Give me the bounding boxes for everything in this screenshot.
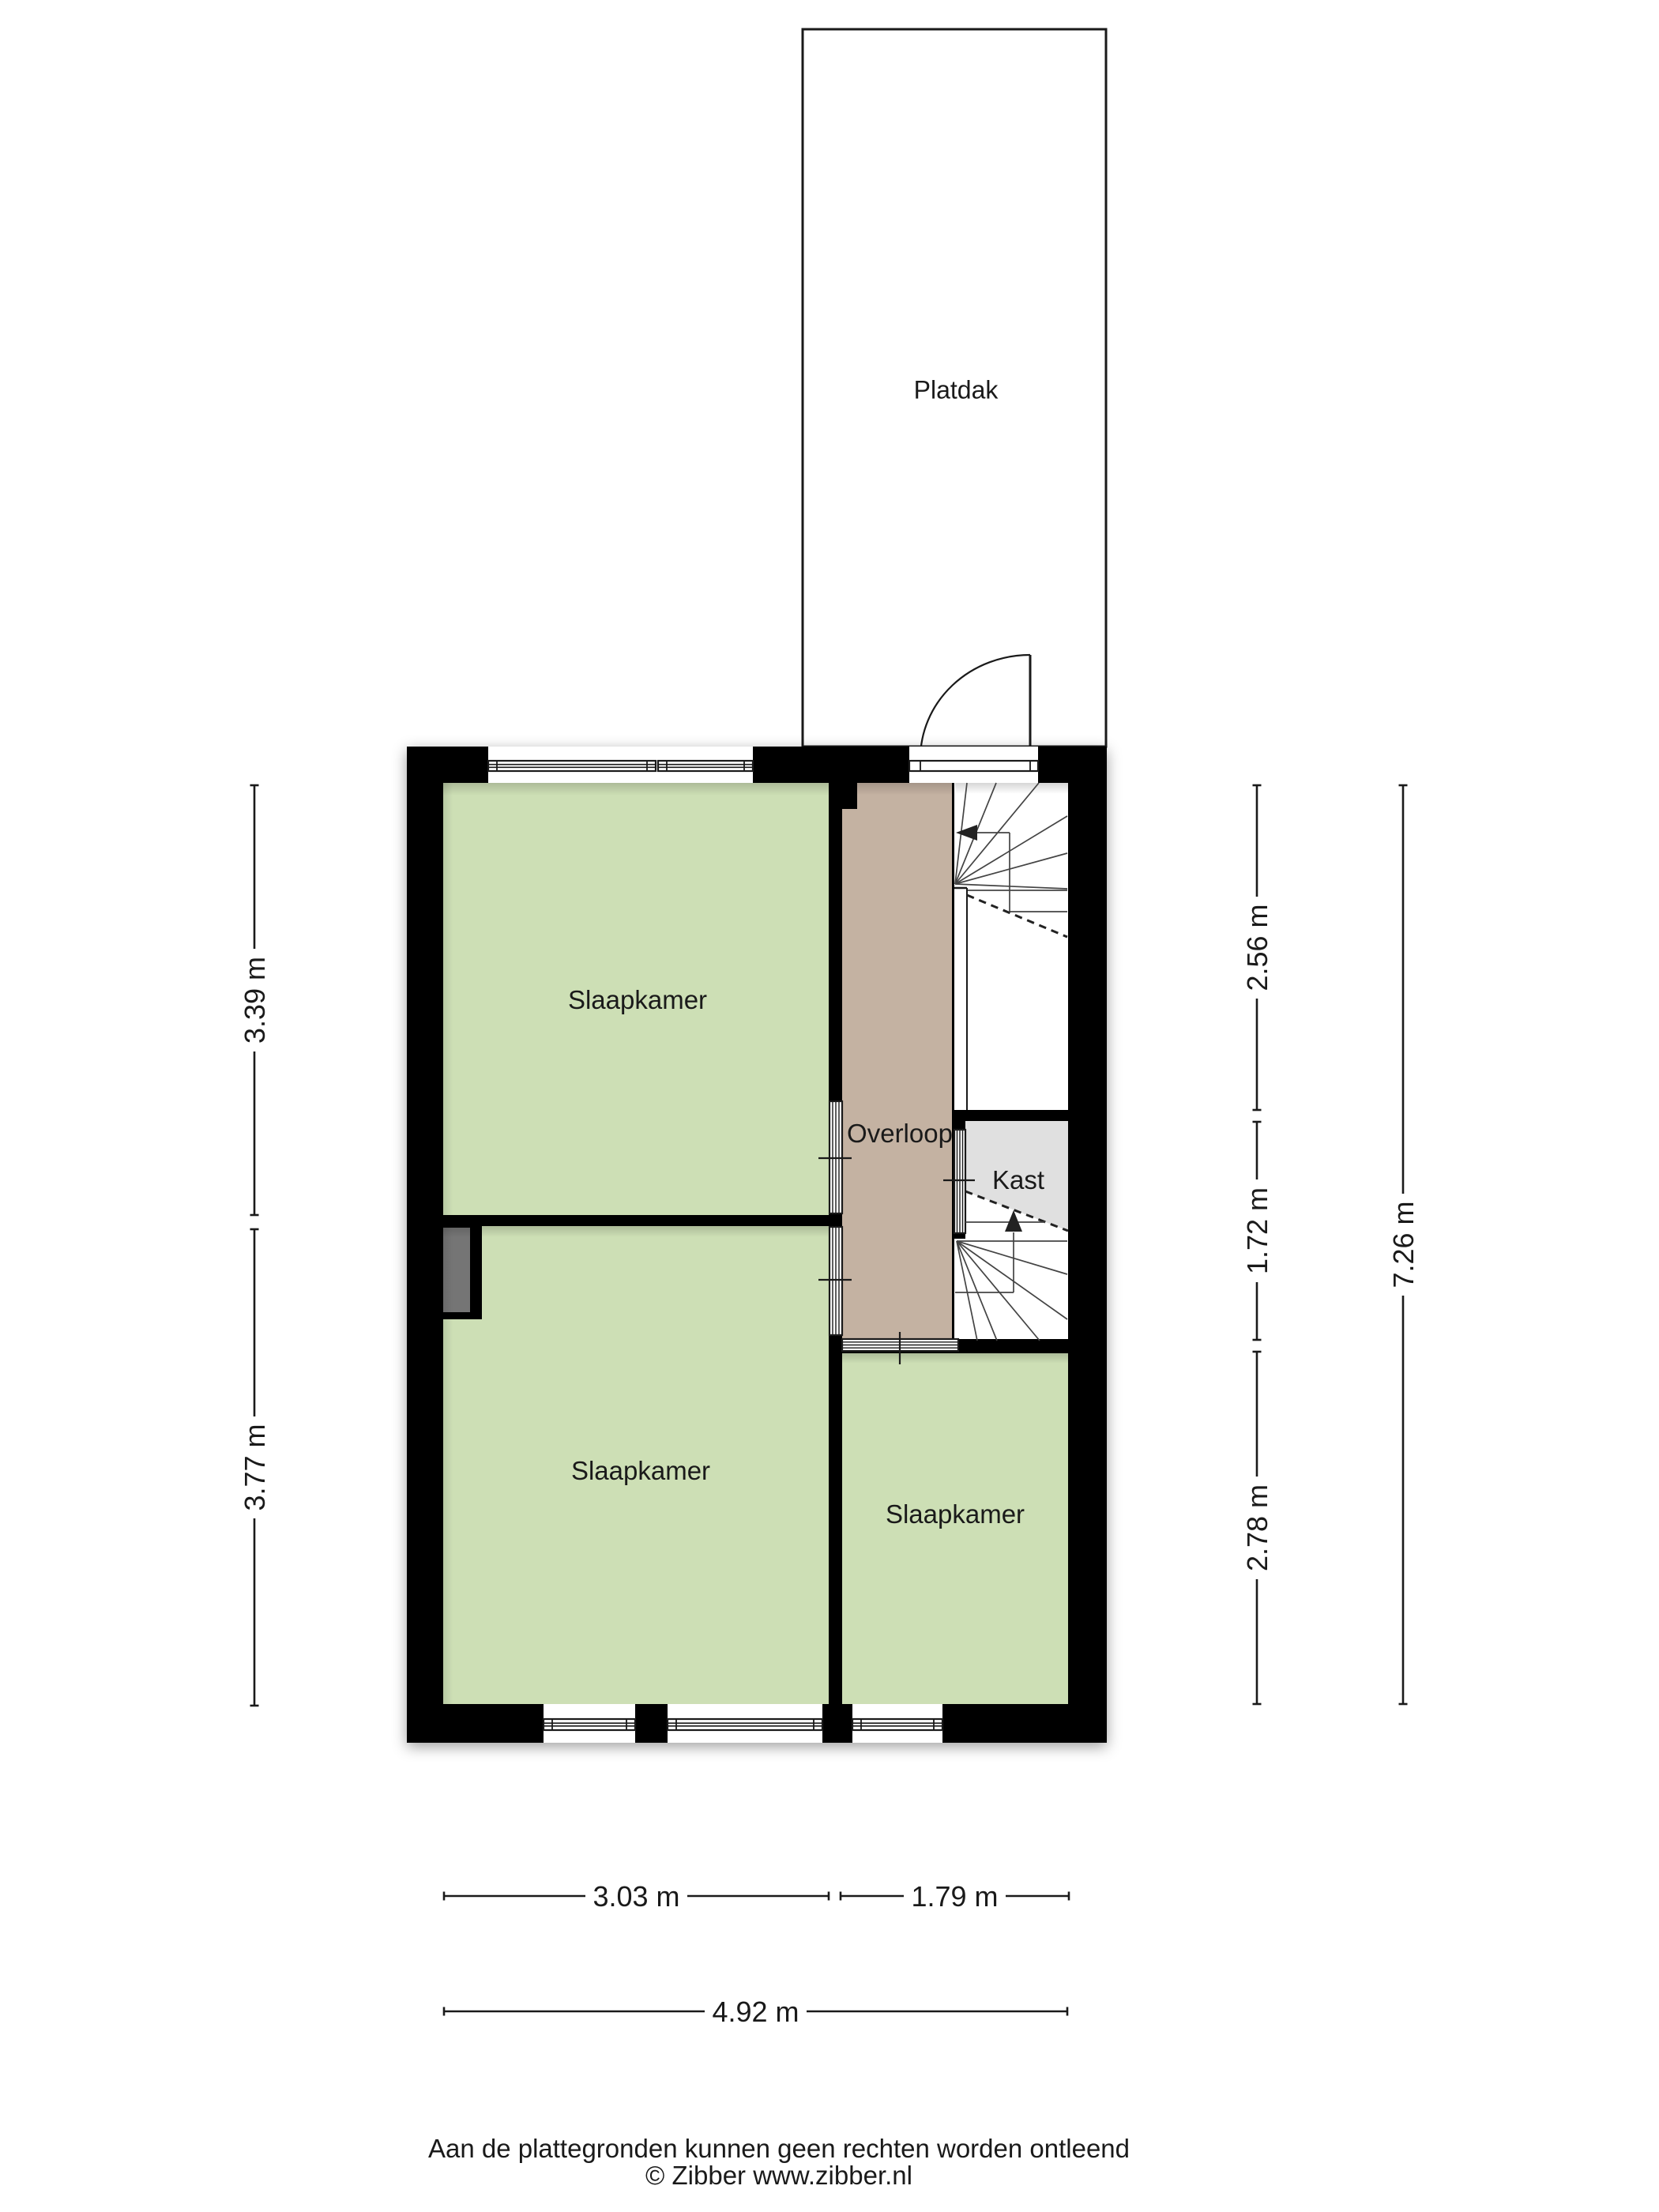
svg-text:3.03 m: 3.03 m	[592, 1880, 679, 1913]
svg-text:2.56 m: 2.56 m	[1241, 904, 1273, 991]
svg-text:2.78 m: 2.78 m	[1241, 1484, 1273, 1571]
svg-text:1.79 m: 1.79 m	[911, 1880, 998, 1913]
svg-text:3.39 m: 3.39 m	[239, 957, 271, 1044]
svg-text:1.72 m: 1.72 m	[1241, 1187, 1273, 1274]
svg-text:4.92 m: 4.92 m	[712, 1996, 799, 2028]
svg-text:Slaapkamer: Slaapkamer	[571, 1456, 710, 1485]
svg-text:7.26 m: 7.26 m	[1387, 1201, 1420, 1288]
svg-text:3.77 m: 3.77 m	[239, 1424, 271, 1510]
svg-text:Slaapkamer: Slaapkamer	[886, 1499, 1025, 1529]
svg-text:Slaapkamer: Slaapkamer	[568, 985, 707, 1014]
svg-text:Platdak: Platdak	[914, 376, 999, 404]
svg-text:Kast: Kast	[992, 1165, 1044, 1194]
svg-text:© Zibber www.zibber.nl: © Zibber www.zibber.nl	[645, 2161, 912, 2190]
svg-text:Overloop: Overloop	[847, 1119, 953, 1148]
svg-text:Aan de plattegronden kunnen ge: Aan de plattegronden kunnen geen rechten…	[428, 2134, 1130, 2163]
